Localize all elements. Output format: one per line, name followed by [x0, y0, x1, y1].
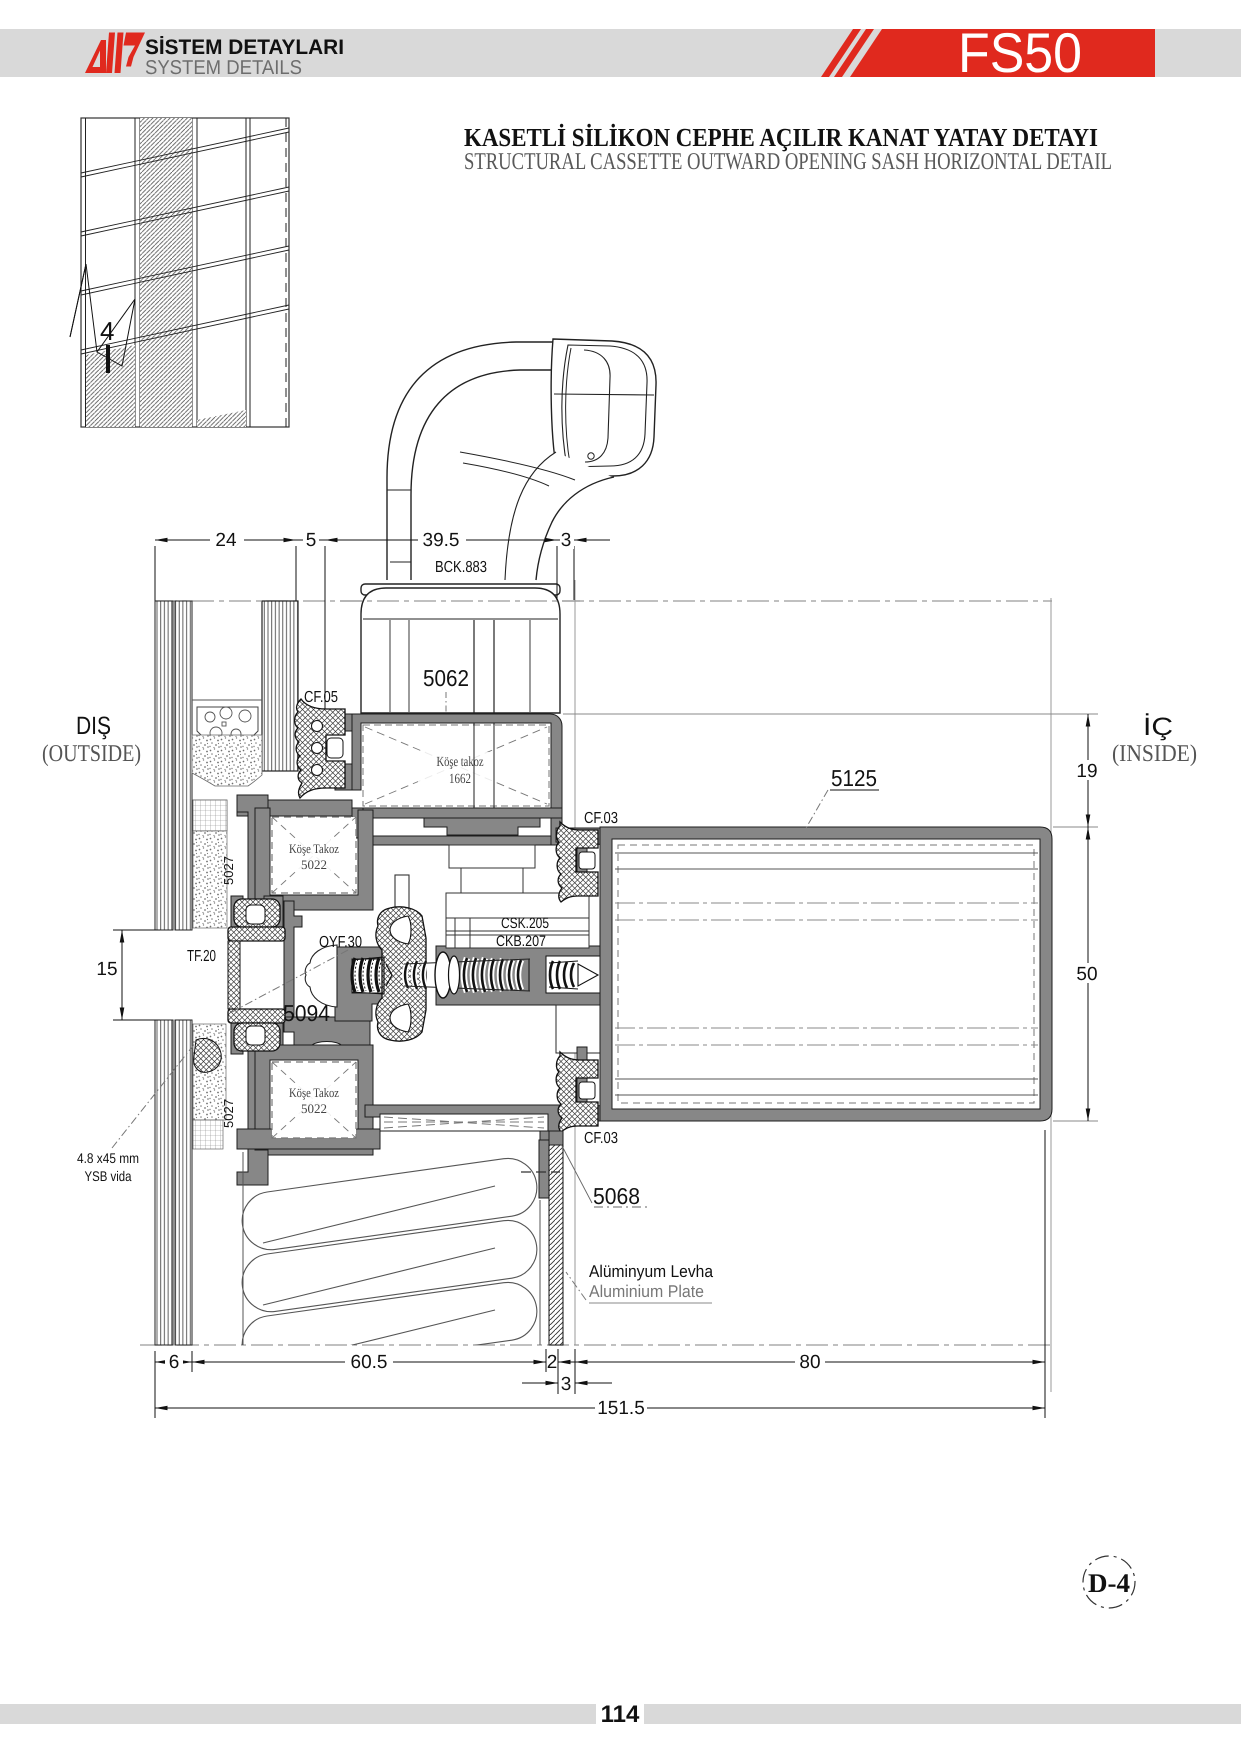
svg-text:5068: 5068: [593, 1183, 640, 1209]
svg-text:CKB.207: CKB.207: [496, 933, 546, 950]
svg-text:60.5: 60.5: [351, 1352, 388, 1373]
svg-text:2: 2: [547, 1352, 558, 1373]
svg-text:D-4: D-4: [1088, 1568, 1130, 1598]
svg-text:YSB vida: YSB vida: [85, 1168, 132, 1184]
svg-text:3: 3: [561, 530, 572, 551]
svg-text:SYSTEM DETAILS: SYSTEM DETAILS: [145, 57, 302, 79]
svg-text:5: 5: [306, 530, 317, 551]
svg-text:Köşe Takoz: Köşe Takoz: [289, 1085, 339, 1100]
svg-text:Köşe takoz: Köşe takoz: [437, 755, 484, 770]
svg-text:151.5: 151.5: [597, 1398, 645, 1419]
svg-text:(OUTSIDE): (OUTSIDE): [42, 741, 141, 767]
svg-text:Alüminyum Levha: Alüminyum Levha: [589, 1262, 713, 1281]
svg-text:24: 24: [215, 530, 237, 551]
svg-text:Aluminium Plate: Aluminium Plate: [589, 1282, 704, 1301]
svg-text:1662: 1662: [449, 772, 471, 787]
svg-text:5027: 5027: [221, 856, 236, 885]
svg-text:BCK.883: BCK.883: [435, 559, 487, 576]
svg-text:SİSTEM DETAYLARI: SİSTEM DETAYLARI: [145, 36, 344, 59]
svg-text:5094: 5094: [283, 1000, 330, 1026]
svg-text:114: 114: [601, 1701, 640, 1728]
svg-text:CF.05: CF.05: [304, 689, 338, 706]
svg-text:KASETLİ SİLİKON CEPHE AÇILIR K: KASETLİ SİLİKON CEPHE AÇILIR KANAT YATAY…: [464, 123, 1098, 152]
svg-text:Köşe Takoz: Köşe Takoz: [289, 841, 339, 856]
svg-text:CF.03: CF.03: [584, 810, 618, 827]
svg-text:6: 6: [169, 1352, 180, 1373]
svg-text:80: 80: [799, 1352, 820, 1373]
svg-text:19: 19: [1076, 761, 1097, 782]
svg-text:5125: 5125: [831, 765, 877, 791]
svg-text:5022: 5022: [301, 857, 327, 872]
svg-text:39.5: 39.5: [423, 530, 460, 551]
svg-text:FS50: FS50: [958, 21, 1082, 84]
svg-text:5022: 5022: [301, 1101, 327, 1116]
svg-text:3: 3: [561, 1374, 572, 1395]
svg-text:DIŞ: DIŞ: [76, 712, 111, 740]
svg-text:CSK.205: CSK.205: [501, 915, 549, 932]
svg-text:İÇ: İÇ: [1143, 713, 1173, 741]
svg-text:CF.03: CF.03: [584, 1130, 618, 1147]
svg-text:50: 50: [1076, 964, 1097, 985]
svg-text:OYF.30: OYF.30: [319, 934, 362, 951]
svg-text:4.8 x45 mm: 4.8 x45 mm: [77, 1150, 139, 1166]
svg-text:5062: 5062: [423, 665, 469, 691]
svg-text:(INSIDE): (INSIDE): [1112, 741, 1197, 767]
svg-text:4: 4: [100, 316, 114, 346]
svg-text:15: 15: [96, 959, 117, 980]
svg-text:STRUCTURAL CASSETTE OUTWARD OP: STRUCTURAL CASSETTE OUTWARD OPENING SASH…: [464, 149, 1112, 175]
svg-text:TF.20: TF.20: [187, 948, 216, 965]
svg-text:5027: 5027: [221, 1099, 236, 1128]
